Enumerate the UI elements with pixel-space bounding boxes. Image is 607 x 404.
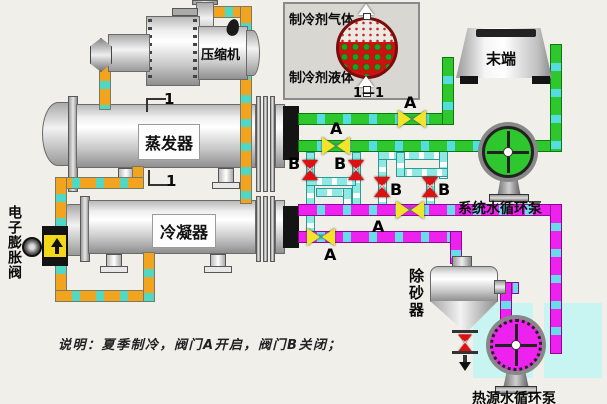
terminal-foot (460, 76, 478, 84)
section-1-1-inset: 制冷剂气体 制冷剂液体 1—1 (283, 2, 420, 100)
valve-a4-label: A (324, 247, 336, 263)
condenser-flange-1 (256, 196, 261, 262)
gas-outlet-stub (363, 13, 371, 20)
drain-arrow-icon (459, 362, 471, 371)
condenser-inlet-pipe (143, 252, 155, 302)
valve-b1-label: B (288, 156, 300, 172)
expansion-valve-knob (22, 237, 42, 257)
terminal-grille (476, 29, 536, 37)
system-pump (482, 126, 534, 178)
expansion-valve-label: 电子膨胀阀 (4, 205, 24, 283)
valve-b1: × (302, 160, 318, 180)
compressor-right-head (246, 30, 260, 76)
valve-a3: × (396, 201, 424, 219)
evaporator-flange-2 (263, 96, 268, 192)
compressor-bolts-right (193, 19, 197, 83)
compressor-label: 压缩机 (201, 44, 240, 63)
chilled-return-riser (550, 44, 562, 152)
section-mark-bottom-line (148, 184, 168, 186)
heat-return-drop (550, 204, 562, 354)
condenser-waterbox (283, 206, 299, 248)
heat-source-pump-label: 热源水循环泵 (472, 388, 556, 404)
compressor-motor (108, 34, 150, 72)
sand-remover-label: 除砂器 (406, 268, 427, 338)
valve-a4: × (307, 228, 335, 246)
expansion-valve-cap-top (42, 226, 68, 233)
valve-a1: × (398, 110, 426, 128)
valve-b2-label: B (334, 156, 346, 172)
valve-a2: × (322, 137, 350, 155)
section-mark-top-tick (146, 98, 148, 112)
refrigerant-vessel-section (336, 17, 398, 79)
expansion-valve-body (42, 233, 68, 259)
drain-valve: × (458, 335, 472, 352)
diagram-canvas: 制冷剂气体 制冷剂液体 1—1 (0, 0, 607, 404)
refrigerant-liquid-zone (339, 42, 395, 76)
refrigerant-gas-zone (339, 20, 395, 42)
note-text: 说明：夏季制冷，阀门A开启，阀门B关闭； (58, 334, 342, 353)
inset-section-label: 1—1 (353, 86, 384, 101)
chilled-supply-riser (442, 57, 454, 125)
evaporator-label: 蒸发器 (138, 124, 200, 160)
valve-a1-label: A (404, 95, 416, 111)
evaporator-outlet-pipe (55, 177, 144, 189)
valve-a2-label: A (330, 121, 342, 137)
compressor-top-pipe (172, 8, 198, 16)
crossover-pipe-bracket (378, 151, 448, 160)
condenser-flange-2 (263, 196, 268, 262)
evaporator-flange-1 (256, 96, 261, 192)
section-mark-top-label: 1 (164, 90, 174, 108)
valve-b3-label: B (390, 182, 402, 198)
compressor-center-housing (146, 16, 200, 86)
sand-remover-outlet (494, 280, 506, 294)
terminal-label: 末端 (486, 48, 516, 69)
condenser-label: 冷凝器 (152, 214, 216, 248)
sand-remover-body (430, 266, 498, 302)
section-mark-top-line (146, 98, 166, 100)
crossover-pipe-bracket (396, 152, 405, 177)
system-pump-label: 系统水循环泵 (458, 198, 542, 218)
valve-a3-label: A (372, 219, 384, 235)
condenser-foot-base (204, 266, 232, 273)
liquid-line-pipe (55, 290, 155, 302)
evaporator-foot-base (212, 182, 240, 189)
condenser-foot-base (100, 266, 128, 273)
expansion-valve-cap-bottom (42, 259, 68, 266)
drain-flange-top (452, 330, 478, 333)
drain-flange-bottom (452, 351, 478, 354)
valve-b2: × (348, 160, 364, 180)
terminal-foot (532, 76, 550, 84)
section-mark-bottom-label: 1 (166, 172, 176, 190)
evaporator-waterbox (283, 106, 299, 160)
heat-source-pump (490, 319, 542, 371)
valve-b3: × (374, 177, 390, 197)
valve-b4: × (422, 177, 438, 197)
valve-b4-label: B (438, 182, 450, 198)
